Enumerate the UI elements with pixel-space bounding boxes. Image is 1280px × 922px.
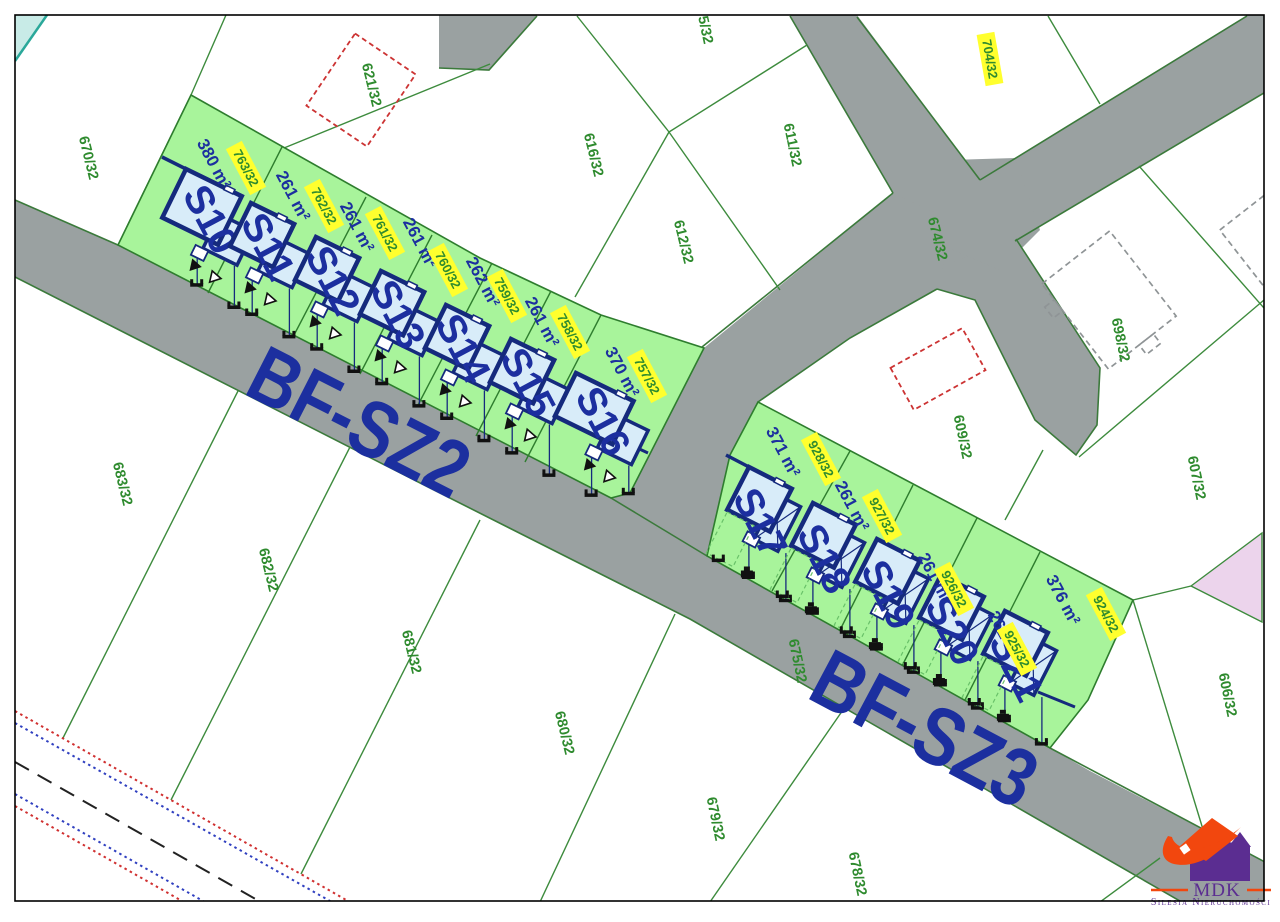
svg-text:Silesia Nieruchomości: Silesia Nieruchomości: [1151, 897, 1271, 908]
